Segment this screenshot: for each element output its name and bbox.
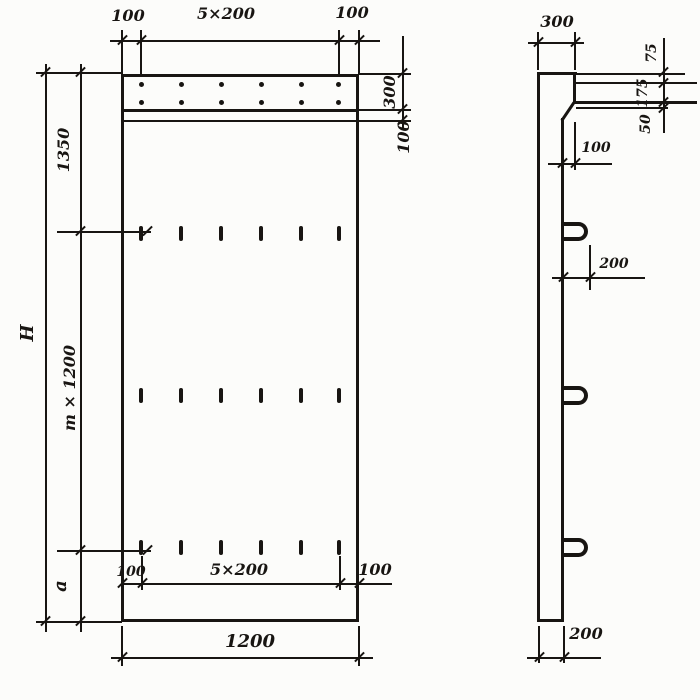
drawing-sheet: 100 5×200 100 300 100 1350 H m × 1200 a <box>0 0 700 700</box>
extension-line <box>577 73 685 75</box>
slot-mark <box>219 540 223 555</box>
slot-mark <box>337 540 341 555</box>
anchor-dot <box>299 82 304 87</box>
dim-label-top-left: 100 <box>111 8 144 24</box>
slot-mark <box>299 226 303 241</box>
slot-mark <box>337 388 341 403</box>
extension-line <box>338 30 340 74</box>
anchor-dot <box>179 82 184 87</box>
dim-label-175: 175 <box>636 78 650 107</box>
band-second-line <box>121 120 359 122</box>
dimension-line <box>552 277 645 279</box>
rail-line <box>576 107 668 109</box>
dim-label-height: H <box>19 324 37 341</box>
anchor-dot <box>259 82 264 87</box>
slot-mark <box>259 226 263 241</box>
dim-label-top-right: 100 <box>335 5 368 21</box>
dimension-line <box>663 38 665 133</box>
dim-label-top-center: 5×200 <box>197 6 255 22</box>
dim-label-75: 75 <box>645 43 659 62</box>
dim-label-bottom-center: 5×200 <box>210 562 268 578</box>
dim-label-side-top: 300 <box>540 14 573 30</box>
dim-label-bottom-left: 100 <box>116 565 145 579</box>
anchor-dot <box>336 100 341 105</box>
dim-label-loop: 200 <box>599 257 628 271</box>
dimension-line <box>111 657 373 659</box>
profile-left-edge <box>537 73 540 622</box>
dim-label-width: 1200 <box>225 633 275 651</box>
slot-mark <box>179 540 183 555</box>
dimension-line <box>548 163 612 165</box>
extension-line <box>589 245 591 290</box>
slot-mark <box>219 388 223 403</box>
extension-line <box>140 30 142 74</box>
dim-label-1350: 1350 <box>56 128 72 173</box>
anchor-dot <box>336 82 341 87</box>
anchor-dot <box>139 100 144 105</box>
slot-mark <box>179 226 183 241</box>
dimension-line <box>45 64 47 632</box>
dim-label-thickness: 200 <box>569 626 602 642</box>
slot-mark <box>337 226 341 241</box>
extension-line <box>57 231 151 233</box>
anchor-dot <box>299 100 304 105</box>
anchor-dot <box>139 82 144 87</box>
extension-line <box>358 30 360 74</box>
extension-line <box>121 30 123 74</box>
dim-label-a: a <box>52 580 70 592</box>
band-bottom-line <box>121 109 359 112</box>
dim-label-band-height: 300 <box>382 75 398 108</box>
extension-line <box>574 32 576 70</box>
lifting-loop <box>562 386 588 405</box>
dim-label-module: m × 1200 <box>62 345 78 431</box>
slot-mark <box>179 388 183 403</box>
panel-outline <box>121 74 359 622</box>
anchor-dot <box>179 100 184 105</box>
extension-line <box>57 550 151 552</box>
dimension-line <box>121 583 392 585</box>
lifting-loop <box>562 222 588 241</box>
dim-label-ledge: 100 <box>581 141 610 155</box>
extension-line <box>121 626 123 666</box>
slot-mark <box>219 226 223 241</box>
slot-mark <box>299 540 303 555</box>
slot-mark <box>259 540 263 555</box>
profile-right-top-edge <box>573 73 576 104</box>
dim-label-band-gap: 100 <box>396 120 412 153</box>
profile-bottom-edge <box>537 619 564 622</box>
lifting-loop <box>562 538 588 557</box>
anchor-dot <box>219 82 224 87</box>
dim-label-bottom-right: 100 <box>358 562 391 578</box>
dim-label-50: 50 <box>639 114 653 133</box>
anchor-dot <box>259 100 264 105</box>
extension-line <box>537 32 539 70</box>
slot-mark <box>299 388 303 403</box>
slot-mark <box>139 388 143 403</box>
extension-line <box>358 626 360 666</box>
anchor-dot <box>219 100 224 105</box>
profile-top-edge <box>537 72 577 75</box>
slot-mark <box>259 388 263 403</box>
